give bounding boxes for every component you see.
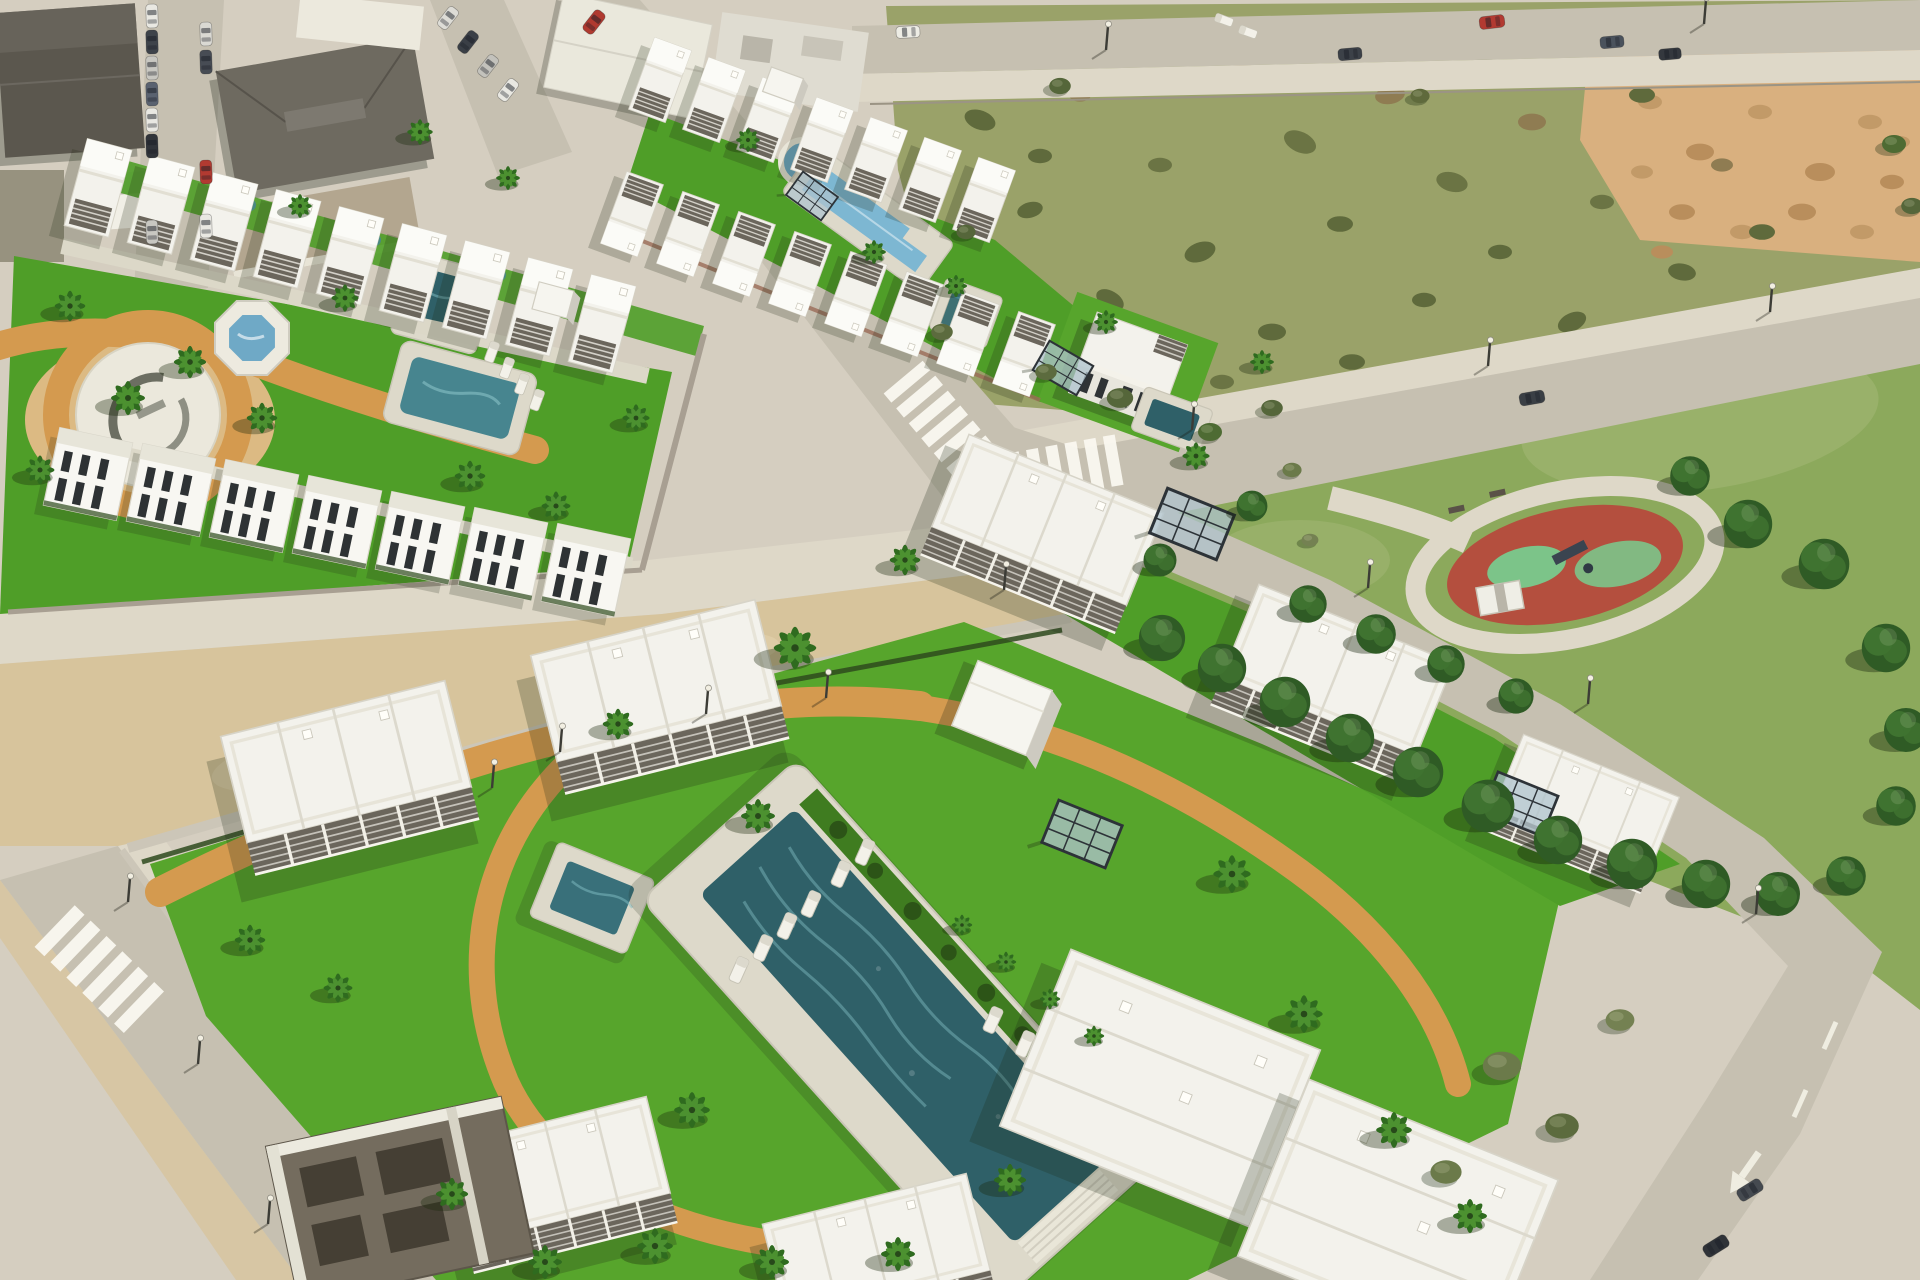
dot-instance [1210, 375, 1234, 389]
dot-instance [1631, 165, 1653, 178]
dot-instance [1669, 204, 1695, 220]
car-instance [200, 22, 213, 46]
car-instance [146, 220, 159, 244]
dot-instance [1258, 324, 1286, 341]
dot-instance [1590, 195, 1614, 209]
dot-instance [1518, 114, 1546, 131]
car-instance [146, 82, 159, 106]
car-instance [200, 160, 213, 184]
dot-instance [1148, 158, 1172, 172]
dot-instance [1327, 216, 1353, 232]
dot-instance [1629, 87, 1655, 103]
car-instance [146, 4, 159, 28]
dot-instance [1749, 224, 1775, 240]
car-instance [1479, 14, 1506, 30]
dot-instance [1651, 245, 1673, 258]
aerial-render [0, 0, 1920, 1280]
car-instance [146, 108, 159, 132]
dot-instance [1412, 293, 1436, 307]
fountain-octagon [215, 301, 289, 375]
dot-instance [1686, 144, 1714, 161]
car-instance [200, 50, 213, 74]
town-building-dark [0, 3, 145, 166]
car-instance [146, 30, 159, 54]
dot-instance [1880, 175, 1904, 189]
scene-canvas [0, 0, 1920, 1280]
car-instance [896, 25, 920, 38]
car-instance [1658, 47, 1681, 60]
car-instance [146, 134, 159, 158]
dot-instance [1711, 158, 1733, 171]
car-instance [1600, 35, 1625, 49]
dot-instance [1748, 105, 1772, 119]
dot-instance [1805, 163, 1835, 181]
dot-instance [1788, 204, 1816, 221]
car-instance [1338, 47, 1363, 61]
dot-instance [1488, 245, 1512, 259]
dot-instance [1858, 115, 1882, 129]
dot-instance [1028, 149, 1052, 163]
dot-instance [1339, 354, 1365, 370]
car-instance [200, 214, 213, 238]
car-instance [146, 56, 159, 80]
dot-instance [1850, 225, 1874, 239]
